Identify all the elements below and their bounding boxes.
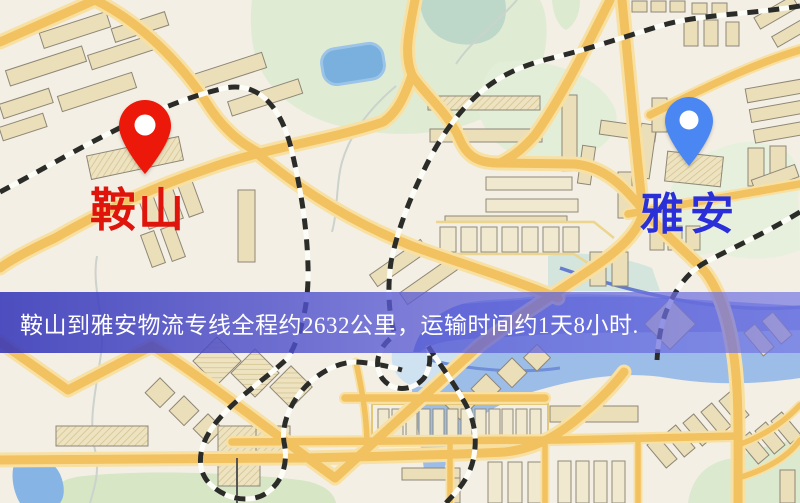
route-info-banner: 鞍山到雅安物流专线全程约2632公里，运输时间约1天8小时. bbox=[0, 292, 800, 353]
marker-anshan[interactable] bbox=[116, 98, 174, 176]
marker-yaan[interactable] bbox=[663, 96, 715, 168]
blue-pin-icon bbox=[663, 96, 715, 168]
marker-yaan-label: 雅安 bbox=[610, 178, 770, 242]
map-background bbox=[0, 0, 800, 503]
map-view[interactable]: 鞍山 雅安 鞍山到雅安物流专线全程约2632公里，运输时间约1天8小时. bbox=[0, 0, 800, 503]
route-info-text: 鞍山到雅安物流专线全程约2632公里，运输时间约1天8小时. bbox=[0, 306, 639, 340]
marker-anshan-label: 鞍山 bbox=[58, 174, 218, 240]
red-pin-icon bbox=[116, 98, 174, 176]
